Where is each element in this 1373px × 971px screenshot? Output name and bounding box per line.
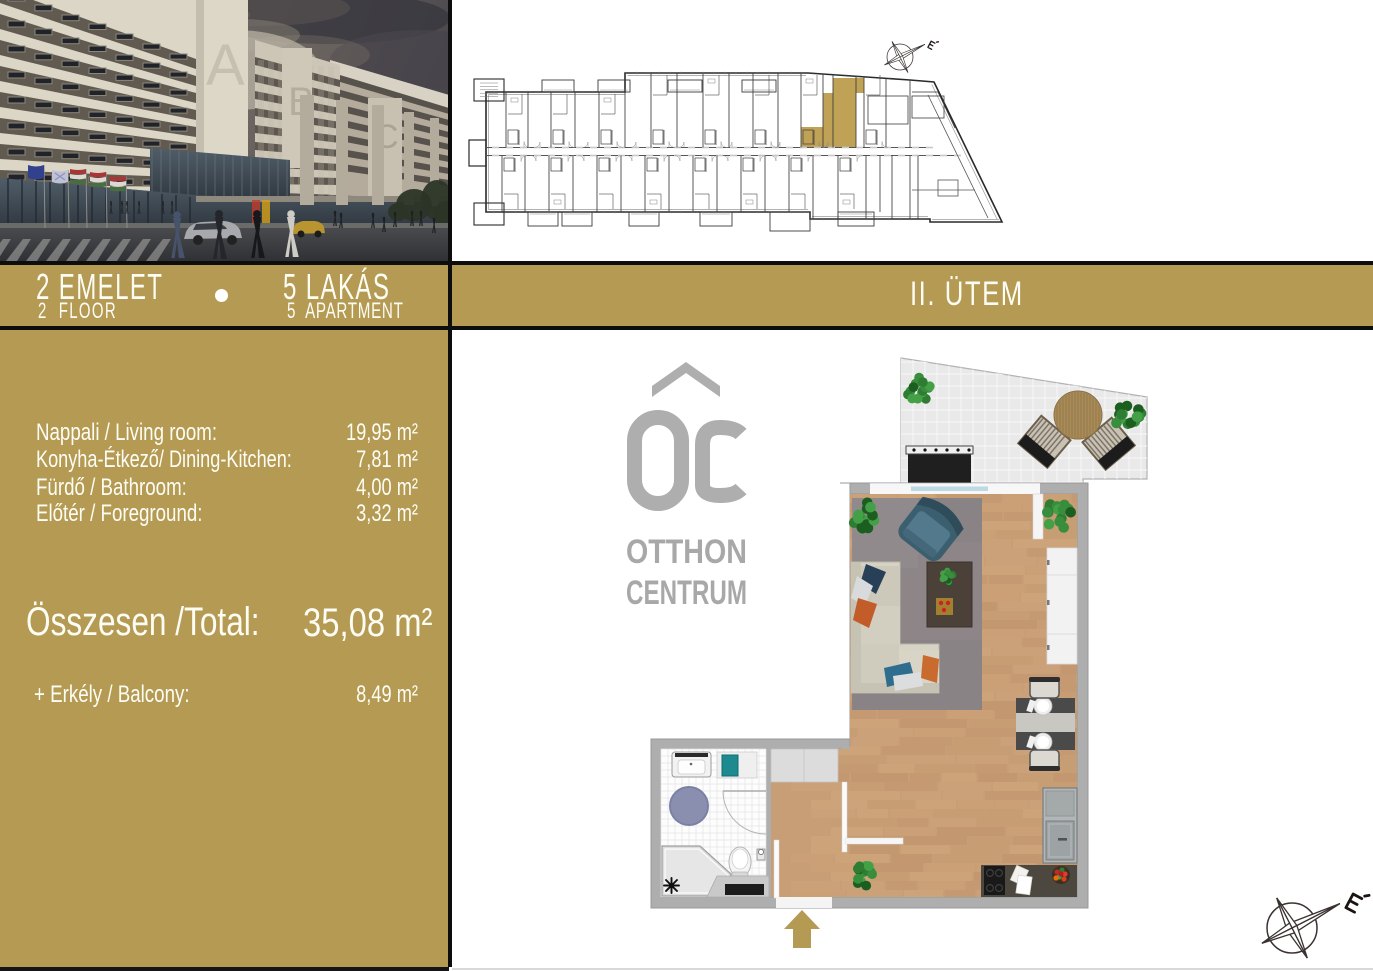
svg-text:OTTHON: OTTHON (626, 533, 747, 571)
svg-text:A: A (206, 33, 245, 98)
svg-text:CENTRUM: CENTRUM (626, 574, 747, 612)
